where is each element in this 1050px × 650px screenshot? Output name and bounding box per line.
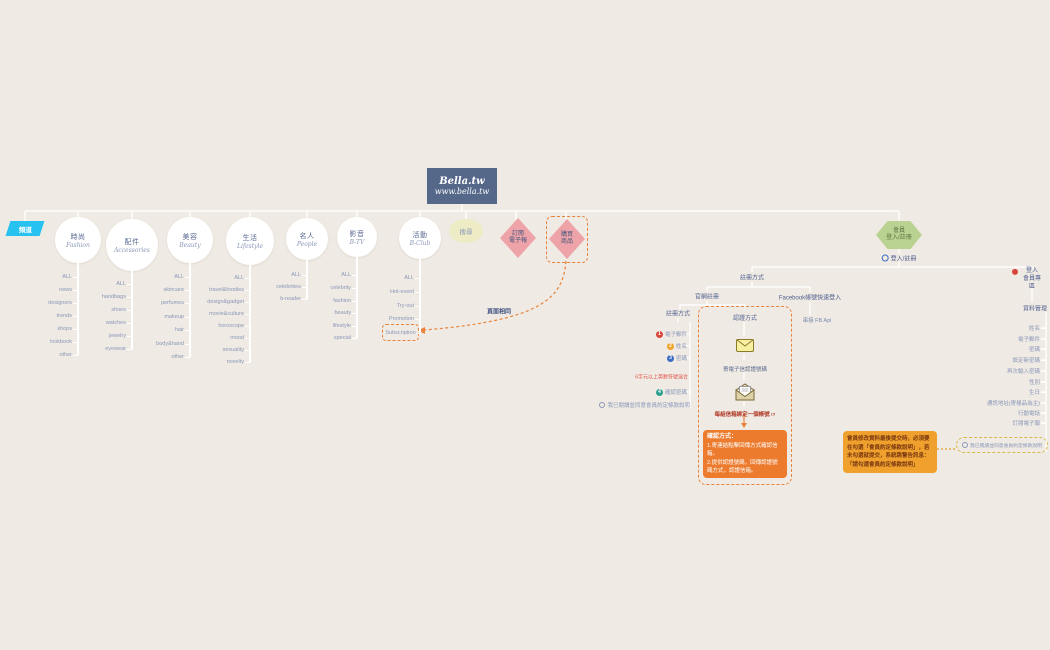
confirm-line1: 1.寄連結點擊回傳方式確認信箱。 bbox=[707, 442, 783, 459]
accessories-item[interactable]: eyewear bbox=[105, 346, 126, 352]
lifestyle-item[interactable]: sexuality bbox=[223, 347, 244, 353]
confirm-method-box[interactable]: 確認方式： 1.寄連結點擊回傳方式確認信箱。 2.提供認證號碼，回傳認證號碼方式… bbox=[703, 430, 787, 478]
btv-item[interactable]: celebrity bbox=[331, 285, 351, 291]
member-area-line2: 會員專區 bbox=[1023, 275, 1041, 291]
subscribe-line2: 電子報 bbox=[509, 238, 527, 246]
lifestyle-item[interactable]: ALL bbox=[234, 275, 244, 281]
channel-en-label: Fashion bbox=[66, 242, 90, 249]
btv-item[interactable]: ALL bbox=[341, 272, 351, 278]
register-field[interactable]: 4確認密碼 bbox=[656, 388, 687, 396]
data-management-item[interactable]: 設定新密碼 bbox=[1012, 356, 1040, 364]
bclub-item[interactable]: Hot-event bbox=[390, 289, 414, 295]
channel-people[interactable]: 名人People bbox=[286, 218, 328, 260]
node-search[interactable]: 搜尋 bbox=[449, 219, 483, 243]
facebook-login-node[interactable]: Facebook帳號快速登入 bbox=[779, 293, 841, 302]
register-field[interactable]: 3密碼 bbox=[667, 354, 687, 362]
subscription-label: Subscription bbox=[385, 330, 415, 336]
data-management-item[interactable]: 電子郵件 bbox=[1018, 335, 1040, 343]
search-label: 搜尋 bbox=[460, 226, 473, 236]
channel-zh-label: 活動 bbox=[413, 230, 428, 240]
channel-fashion[interactable]: 時尚Fashion bbox=[55, 217, 101, 263]
channel-bclub[interactable]: 活動B-Club bbox=[399, 217, 441, 259]
purchase-line2: 商品 bbox=[561, 239, 573, 247]
official-register-node[interactable]: 官網註冊 bbox=[695, 292, 719, 301]
field-label: 電子郵件 bbox=[665, 330, 687, 338]
bclub-item[interactable]: Promotion bbox=[389, 316, 414, 322]
login-register-label: 登入/註冊 bbox=[891, 254, 917, 263]
envelope-icon bbox=[736, 339, 754, 352]
subscribe-line1: 訂閱 bbox=[512, 231, 524, 239]
register-field[interactable]: 1電子郵件 bbox=[656, 330, 687, 338]
accessories-item[interactable]: shoes bbox=[111, 307, 126, 313]
field-label: 密碼 bbox=[676, 354, 687, 362]
channel-branch-line bbox=[306, 260, 307, 299]
purchase-line1: 購買 bbox=[561, 232, 573, 240]
hexagon-line2: 登入/註冊 bbox=[886, 235, 912, 243]
subscription-highlight-box[interactable]: Subscription bbox=[382, 324, 419, 341]
fashion-item[interactable]: designers bbox=[48, 300, 72, 306]
fashion-item[interactable]: trends bbox=[57, 313, 72, 319]
red-marker-icon bbox=[1012, 269, 1018, 275]
password-hint: 6字元以上英數符號混合 bbox=[635, 374, 688, 381]
lifestyle-item[interactable]: novelty bbox=[227, 359, 244, 365]
agree-terms-label: 我已閱讀並同意會員約定條款說明 bbox=[607, 401, 690, 409]
field-label: 姓名 bbox=[676, 342, 687, 350]
beauty-item[interactable]: makeup bbox=[164, 314, 184, 320]
channel-btv[interactable]: 影音B-TV bbox=[337, 217, 377, 257]
site-title: Bella.tw bbox=[439, 176, 485, 187]
agree-terms-label-right: 我已閱讀並同意會員約定條款說明 bbox=[970, 442, 1042, 449]
channel-en-label: Beauty bbox=[179, 242, 200, 249]
beauty-item[interactable]: ALL bbox=[174, 274, 184, 280]
verify-step2-label: 每組信箱綁定一個帳號 !? bbox=[699, 410, 791, 418]
verification-box[interactable]: 認證方式 寄電子信認證號碼 每組信箱綁定一個帳號 !? 確認方式： 1.寄連結點… bbox=[698, 306, 792, 485]
register-fields-title[interactable]: 註冊方式 bbox=[666, 309, 690, 318]
connector-lines bbox=[0, 0, 1050, 650]
accessories-item[interactable]: handbags bbox=[102, 294, 126, 300]
btv-item[interactable]: special bbox=[334, 335, 351, 341]
policy-note-text: 會員修改資料最後提交時，必須要在勾選「會員約定條款說明」，若未勾選就提交，系統跳… bbox=[847, 436, 930, 468]
root-node-bella[interactable]: Bella.tw www.bella.tw bbox=[427, 168, 497, 204]
accessories-item[interactable]: watches bbox=[106, 320, 126, 326]
beauty-item[interactable]: skincare bbox=[164, 287, 184, 293]
data-management-item[interactable]: 通訊地址(寄樣品為主) bbox=[987, 399, 1040, 407]
bclub-item[interactable]: Try-out bbox=[397, 303, 414, 309]
channel-branch-line bbox=[419, 259, 420, 332]
data-management-item[interactable]: 訂閱電子報 bbox=[1012, 419, 1040, 427]
field-number-icon: 2 bbox=[667, 343, 674, 350]
bclub-item[interactable]: ALL bbox=[404, 275, 414, 281]
policy-note-box[interactable]: 會員修改資料最後提交時，必須要在勾選「會員約定條款說明」，若未勾選就提交，系統跳… bbox=[843, 431, 937, 473]
people-item[interactable]: ALL bbox=[291, 272, 301, 278]
channel-beauty[interactable]: 美容Beauty bbox=[167, 217, 213, 263]
channel-zh-label: 美容 bbox=[183, 232, 198, 242]
lifestyle-item[interactable]: mood bbox=[230, 335, 244, 341]
beauty-item[interactable]: hair bbox=[175, 327, 184, 333]
fashion-item[interactable]: news bbox=[59, 287, 72, 293]
channel-accessories[interactable]: 配件Accessories bbox=[106, 219, 158, 271]
envelope-open-icon bbox=[735, 383, 755, 401]
fashion-item[interactable]: shops bbox=[57, 326, 72, 332]
same-page-label: 頁面相同 bbox=[487, 307, 511, 316]
channel-en-label: Lifestyle bbox=[237, 243, 263, 250]
beauty-item[interactable]: other bbox=[171, 354, 184, 360]
subscribe-diamond: 訂閱 電子報 bbox=[500, 218, 536, 258]
node-subscribe-newsletter[interactable]: 訂閱 電子報 bbox=[498, 216, 538, 261]
node-purchase-goods[interactable]: 購買 商品 bbox=[546, 216, 588, 263]
hexagon-line1: 會員 bbox=[893, 228, 905, 236]
channel-zh-label: 影音 bbox=[350, 229, 365, 239]
field-label: 確認密碼 bbox=[665, 388, 687, 396]
row-label-channels[interactable]: 頻道 bbox=[6, 221, 45, 236]
fashion-item[interactable]: other bbox=[59, 352, 72, 358]
fashion-item[interactable]: lookbook bbox=[50, 339, 72, 345]
channel-zh-label: 生活 bbox=[243, 233, 258, 243]
channel-en-label: People bbox=[297, 241, 317, 248]
channel-lifestyle[interactable]: 生活Lifestyle bbox=[226, 217, 274, 265]
member-area-node[interactable]: 登入 會員專區 bbox=[1023, 267, 1041, 291]
lifestyle-item[interactable]: movie&culture bbox=[209, 311, 244, 317]
accessories-item[interactable]: ALL bbox=[116, 281, 126, 287]
channel-zh-label: 配件 bbox=[125, 237, 140, 247]
data-management-item[interactable]: 再次輸入密碼 bbox=[1007, 367, 1040, 375]
btv-item[interactable]: fashion bbox=[333, 298, 351, 304]
data-management-title[interactable]: 資料管理 bbox=[1023, 304, 1047, 313]
accessories-item[interactable]: jewelry bbox=[109, 333, 126, 339]
site-url: www.bella.tw bbox=[435, 187, 489, 196]
field-number-icon: 4 bbox=[656, 389, 663, 396]
channel-en-label: B-Club bbox=[410, 240, 431, 247]
checkbox-icon bbox=[962, 442, 968, 448]
field-number-icon: 3 bbox=[667, 355, 674, 362]
member-area-line1: 登入 bbox=[1023, 267, 1041, 275]
row-label-text: 頻道 bbox=[19, 224, 32, 234]
agree-terms-item[interactable]: 我已閱讀並同意會員約定條款說明 bbox=[599, 401, 690, 409]
people-item[interactable]: celebrities bbox=[276, 284, 301, 290]
node-member-login-register[interactable]: 會員 登入/註冊 bbox=[876, 221, 922, 249]
channel-en-label: B-TV bbox=[350, 239, 365, 246]
confirm-line2: 2.提供認證號碼，回傳認證號碼方式，認證信箱。 bbox=[707, 459, 783, 476]
data-management-item[interactable]: 生日 bbox=[1029, 388, 1040, 396]
channel-zh-label: 名人 bbox=[300, 231, 315, 241]
beauty-item[interactable]: body&hand bbox=[156, 341, 184, 347]
data-management-item[interactable]: 行動電話 bbox=[1018, 409, 1040, 417]
lifestyle-item[interactable]: travel&foodies bbox=[209, 287, 244, 293]
checkbox-icon bbox=[599, 402, 605, 408]
register-method-node[interactable]: 註冊方式 bbox=[740, 273, 764, 282]
field-number-icon: 1 bbox=[656, 331, 663, 338]
agree-terms-item-right[interactable]: 我已閱讀並同意會員約定條款說明 bbox=[956, 437, 1048, 453]
data-management-item[interactable]: 姓名 bbox=[1029, 324, 1040, 332]
login-register-item[interactable]: 登入/註冊 bbox=[882, 254, 917, 263]
beauty-item[interactable]: perfumes bbox=[161, 300, 184, 306]
lifestyle-item[interactable]: horoscope bbox=[218, 323, 244, 329]
btv-item[interactable]: lifestyle bbox=[333, 323, 351, 329]
data-management-item[interactable]: 性別 bbox=[1029, 378, 1040, 386]
channel-zh-label: 時尚 bbox=[71, 232, 86, 242]
purchase-diamond: 購買 商品 bbox=[549, 219, 585, 259]
data-management-item[interactable]: 密碼 bbox=[1029, 345, 1040, 353]
confirm-title: 確認方式： bbox=[707, 433, 783, 442]
fb-api-node[interactable]: 串接 FB Api bbox=[803, 316, 832, 324]
fashion-item[interactable]: ALL bbox=[62, 274, 72, 280]
register-field[interactable]: 2姓名 bbox=[667, 342, 687, 350]
btv-item[interactable]: beauty bbox=[334, 310, 351, 316]
people-item[interactable]: b-reader bbox=[280, 296, 301, 302]
channel-en-label: Accessories bbox=[114, 247, 150, 254]
lifestyle-item[interactable]: design&gadget bbox=[207, 299, 244, 305]
circle-marker-icon bbox=[882, 255, 889, 262]
verify-step1-label: 寄電子信認證號碼 bbox=[699, 365, 791, 373]
verification-title: 認證方式 bbox=[699, 313, 791, 322]
